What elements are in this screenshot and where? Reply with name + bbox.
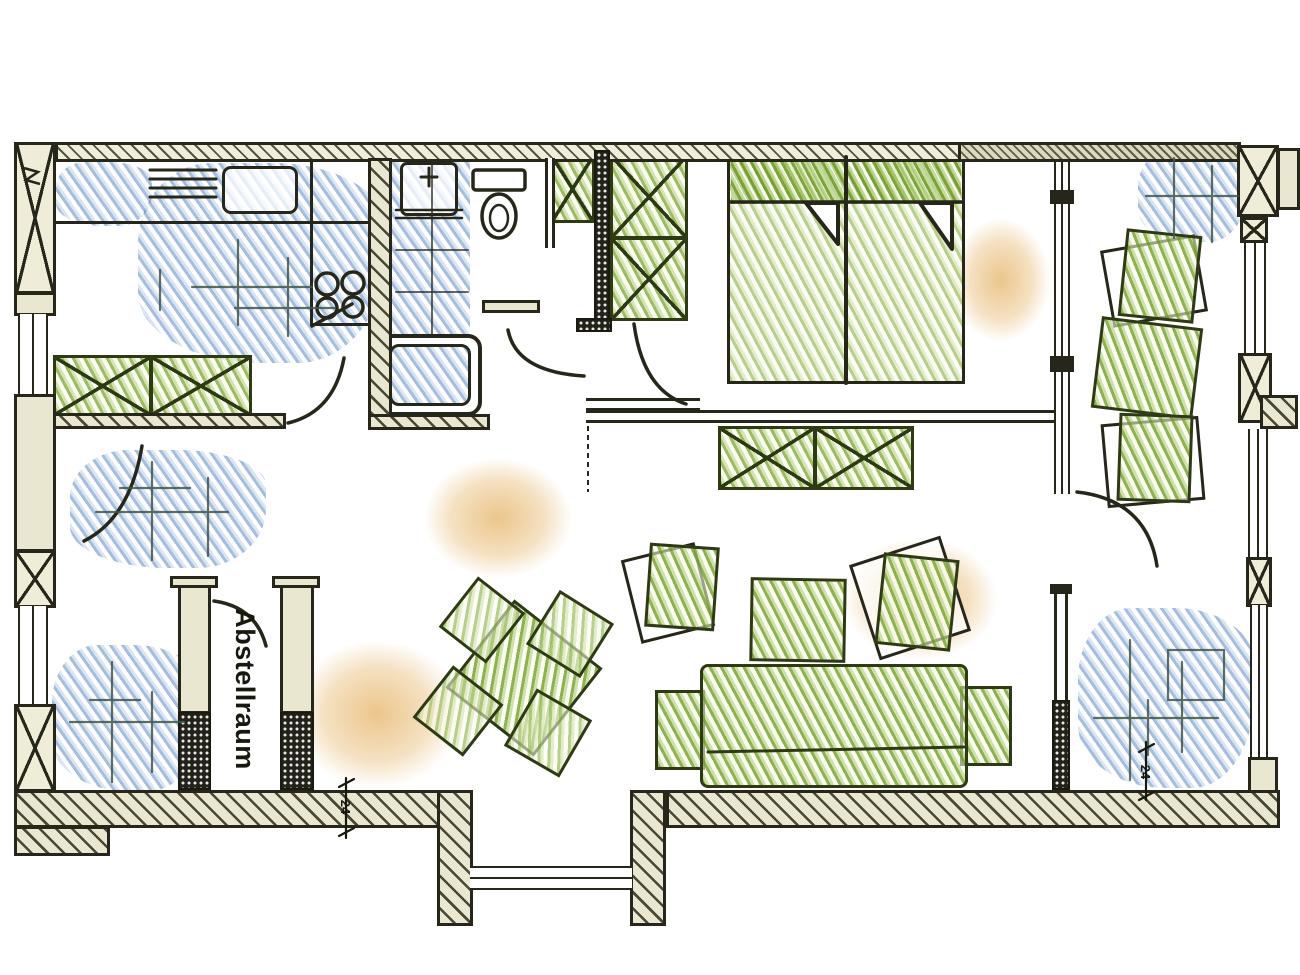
right-window-2 xyxy=(1248,429,1268,559)
bedroom-door-swing xyxy=(634,324,686,404)
bathroom-right-wall xyxy=(545,158,555,248)
storage-wall-left xyxy=(178,580,211,714)
coffee-table xyxy=(749,577,846,663)
hall-living-wall xyxy=(586,410,1056,423)
right-window-1 xyxy=(1244,243,1266,355)
bed-head-blanket xyxy=(731,160,961,204)
left-wall-pillar-2 xyxy=(14,550,56,608)
dimension-label-left: 24 xyxy=(338,793,354,821)
screen-bottom xyxy=(1052,700,1070,790)
bedroom-sideboard-right xyxy=(814,426,914,490)
bottom-wall-left xyxy=(14,790,442,828)
sofa-armrest-left xyxy=(655,690,705,770)
wardrobe-lower xyxy=(610,237,688,321)
left-wall-pillar-3 xyxy=(14,704,56,792)
kitchen-bottom-wall xyxy=(53,413,286,429)
floor-plan: Abstellraum 24 24 xyxy=(0,0,1300,975)
dimension-label-right: 24 xyxy=(1138,758,1154,786)
left-room-shading xyxy=(70,450,266,568)
loggia-chair-1 xyxy=(1118,228,1203,323)
loggia-chair-3 xyxy=(1116,413,1193,504)
bathroom-bottom-wall xyxy=(368,414,490,430)
entrance-partition xyxy=(594,150,610,330)
bottom-wall-right xyxy=(666,790,1280,828)
bathtub-basin xyxy=(389,344,471,406)
right-wall-pillar-1 xyxy=(1237,145,1279,217)
right-wall-foot xyxy=(1248,757,1278,793)
right-wall-pillar-3 xyxy=(1246,557,1272,607)
storage-wall-cap-left xyxy=(170,576,218,588)
loggia-chair-2 xyxy=(1091,316,1203,420)
bathroom-door-swing xyxy=(508,330,584,376)
storage-wall-right-bottom xyxy=(280,712,314,790)
bay-window xyxy=(470,866,632,890)
left-wall-segment xyxy=(14,394,56,552)
kitchen-bath-wall xyxy=(368,158,392,430)
bedroom-loggia-partition xyxy=(1054,162,1070,494)
storage-room-label: Abstellraum xyxy=(229,594,261,784)
bedroom-sideboard-left xyxy=(718,426,816,490)
screen-cap xyxy=(1050,584,1072,594)
sofa-body xyxy=(700,664,968,788)
bedroom-rug xyxy=(952,218,1050,342)
storage-wall-left-bottom xyxy=(178,712,211,790)
right-wall-protrusion xyxy=(1260,395,1298,429)
wardrobe-upper xyxy=(610,155,688,239)
hall-rug-upper xyxy=(424,458,572,578)
loggia-corner-shading xyxy=(1138,150,1246,242)
shower-nook-wall xyxy=(482,300,540,313)
left-window-2 xyxy=(18,606,48,706)
top-wall-window-band xyxy=(958,142,1241,162)
right-window-3 xyxy=(1250,605,1268,759)
lower-right-floor-shading xyxy=(1078,608,1254,788)
partition-frame-tick-2 xyxy=(1050,356,1074,372)
right-wall-corner-block xyxy=(1277,148,1300,210)
kitchen-door-swing xyxy=(288,358,344,423)
bottom-wall-left-step xyxy=(14,826,110,856)
kitchen-sink xyxy=(222,166,298,214)
hall-cabinet xyxy=(550,155,595,223)
kitchen-sideboard-left xyxy=(53,355,152,417)
kitchen-sideboard-right xyxy=(150,355,252,417)
washbasin xyxy=(400,162,458,216)
partition-frame-tick-1 xyxy=(1050,190,1074,204)
entrance-partition-foot xyxy=(576,318,612,332)
storage-wall-cap-right xyxy=(272,576,320,588)
left-window-1 xyxy=(18,314,48,396)
right-wall-pillar-1b xyxy=(1240,217,1268,243)
storage-wall-right xyxy=(280,580,314,714)
bay-pier-right xyxy=(630,790,666,926)
bay-pier-left xyxy=(437,790,473,926)
armchair xyxy=(874,552,959,651)
side-chair xyxy=(644,543,720,632)
left-wall-pillar-1 xyxy=(14,142,56,294)
left-wall-joint xyxy=(14,292,56,316)
